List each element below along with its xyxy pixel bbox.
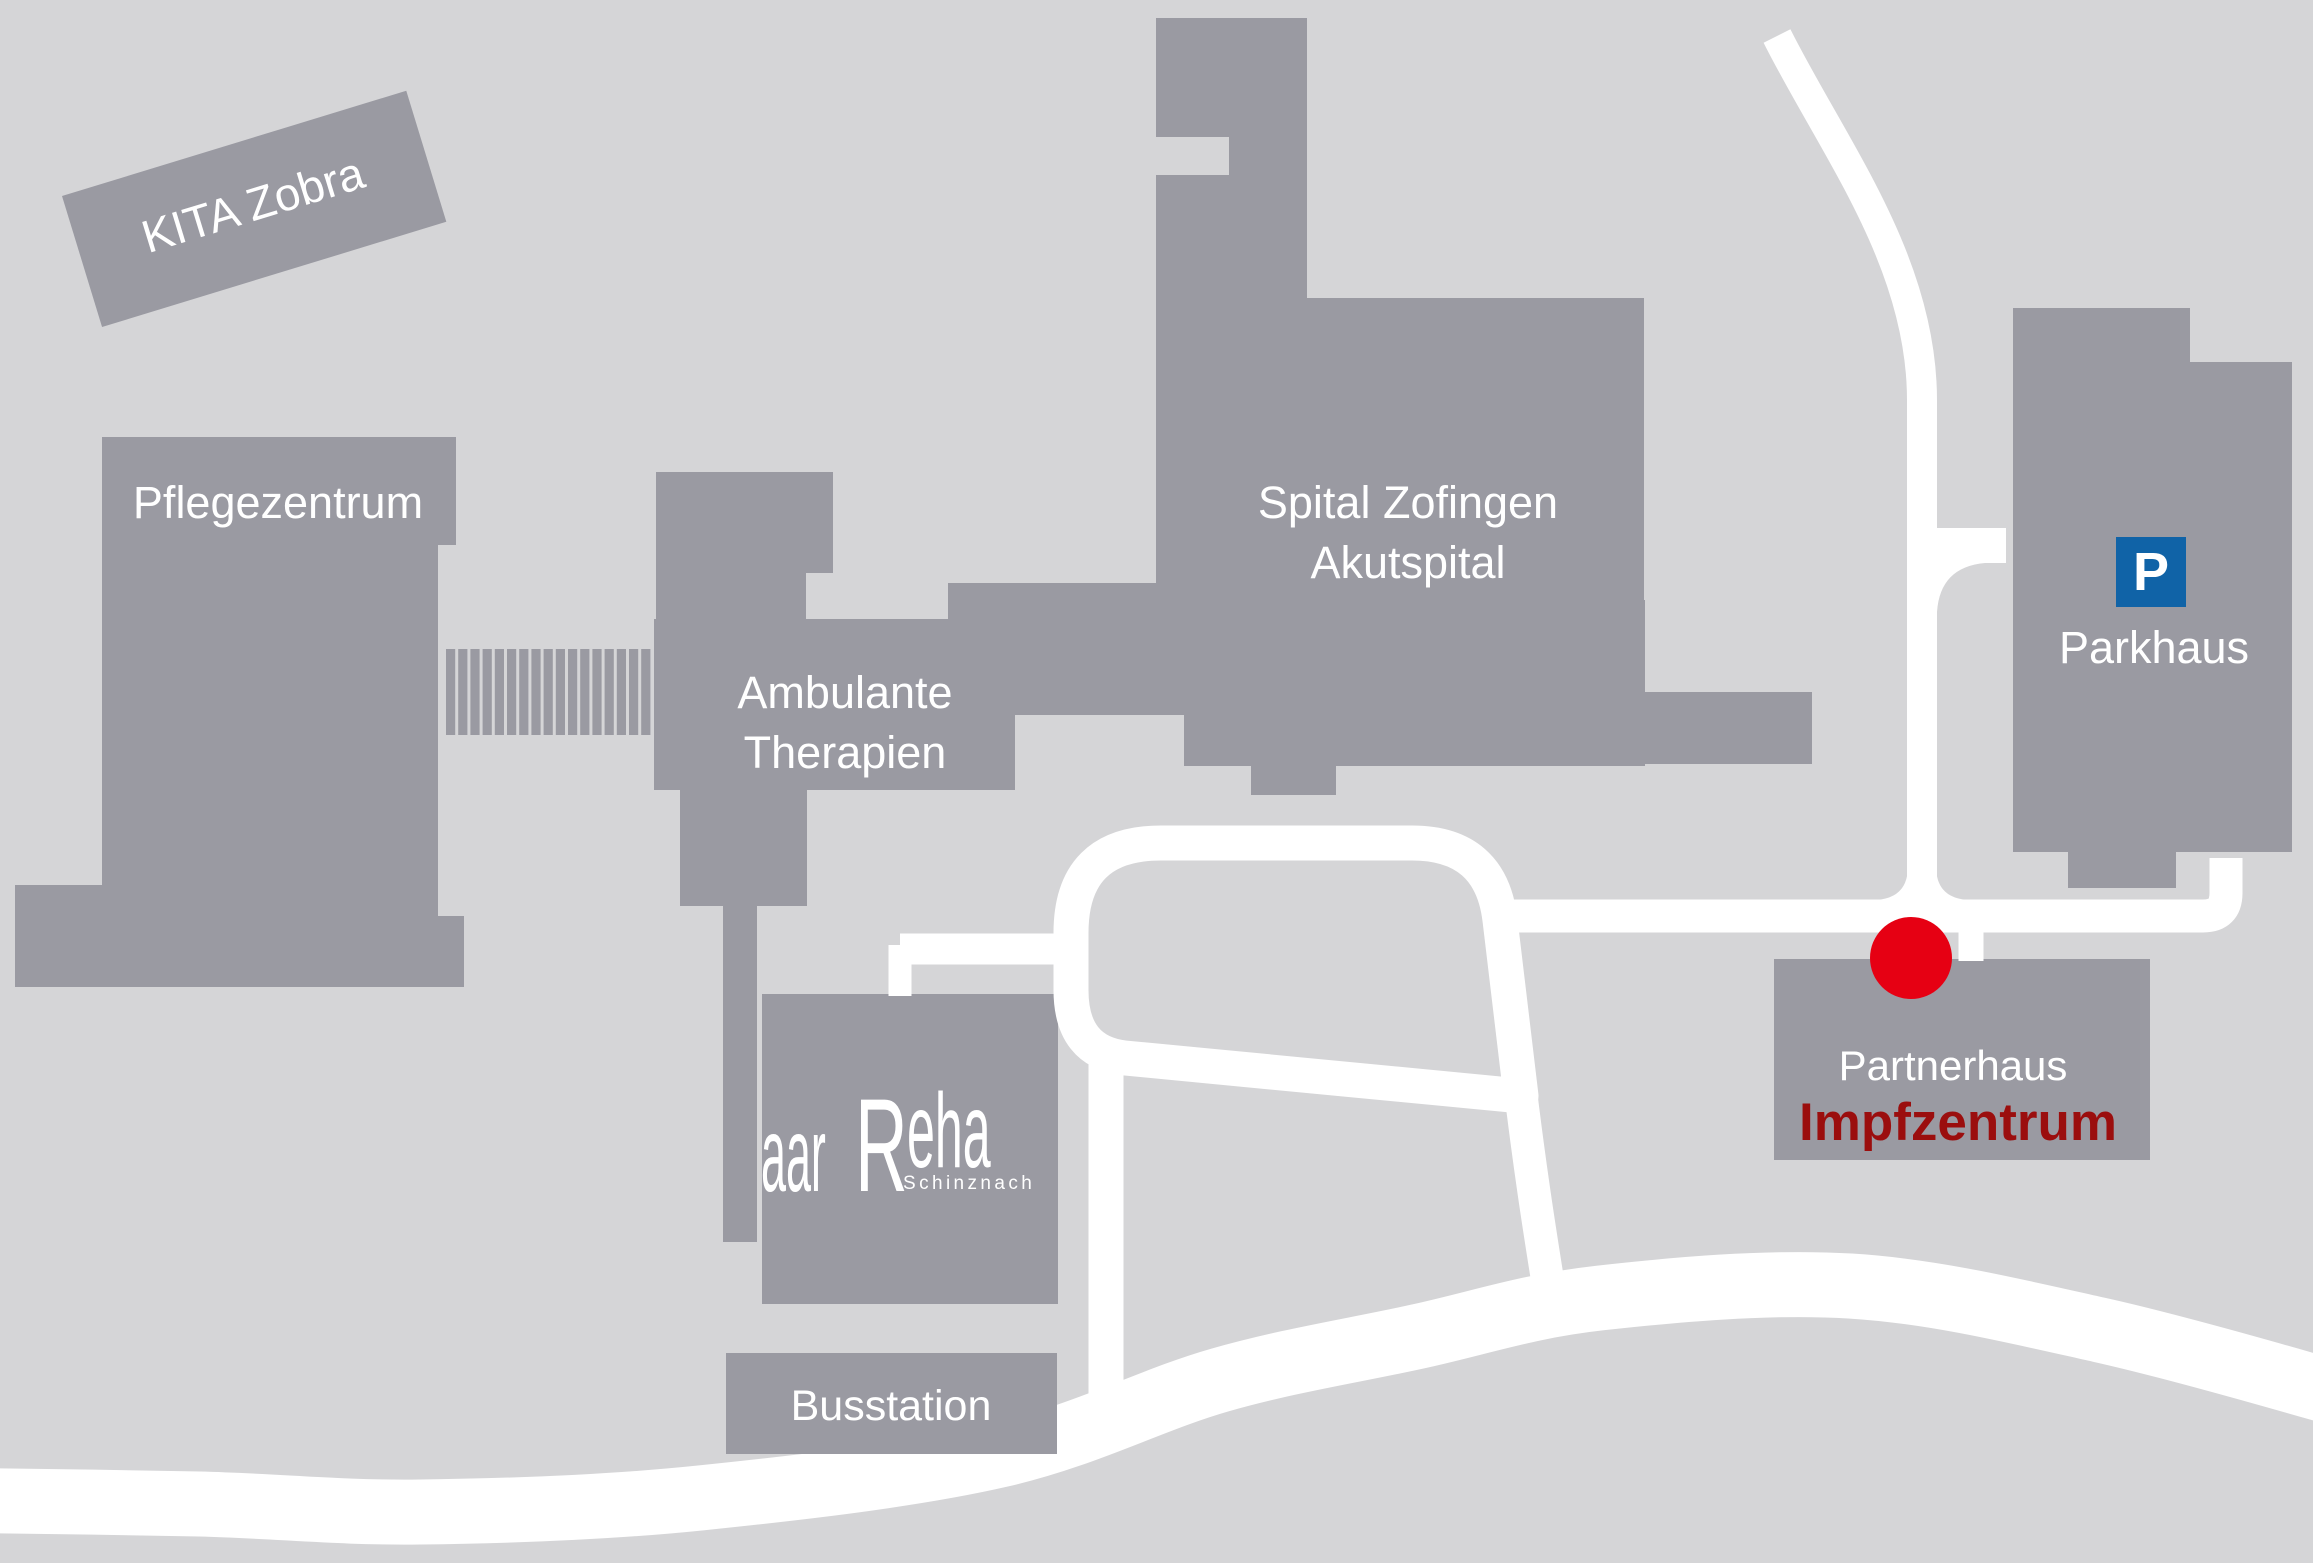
svg-text:Busstation: Busstation [791, 1382, 992, 1430]
svg-text:aar: aar [761, 1097, 826, 1214]
svg-text:R: R [855, 1071, 908, 1220]
svg-text:Parkhaus: Parkhaus [2059, 622, 2249, 673]
svg-text:Pflegezentrum: Pflegezentrum [133, 477, 423, 528]
svg-text:P: P [2133, 542, 2169, 602]
svg-text:Ambulante: Ambulante [737, 667, 952, 718]
svg-text:Schinznach: Schinznach [903, 1173, 1035, 1194]
svg-text:Therapien: Therapien [744, 727, 947, 778]
svg-text:Akutspital: Akutspital [1310, 537, 1505, 588]
svg-text:Spital Zofingen: Spital Zofingen [1258, 477, 1558, 528]
svg-text:Partnerhaus: Partnerhaus [1839, 1042, 2068, 1089]
svg-text:Impfzentrum: Impfzentrum [1799, 1093, 2117, 1152]
